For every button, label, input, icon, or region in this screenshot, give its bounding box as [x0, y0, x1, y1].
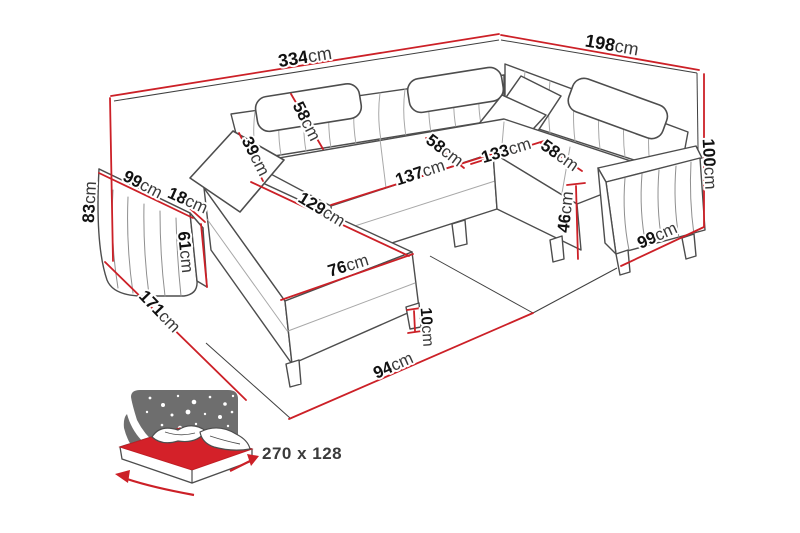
product-dimension-image: 334cm198cm83cm99cm18cm61cm171cm39cm58cm1…: [0, 0, 800, 533]
dimension-label-height-right: 100cm: [699, 138, 721, 190]
sofa-dimension-diagram: 334cm198cm83cm99cm18cm61cm171cm39cm58cm1…: [0, 0, 800, 533]
sofa-drawing: [98, 64, 705, 387]
dimension-label-leg-height: 10cm: [417, 307, 437, 347]
sofa-leg: [286, 360, 301, 387]
dimension-label-total-width: 334cm: [277, 43, 334, 71]
sofa-leg: [452, 220, 467, 247]
sofa-bed-icon: [115, 390, 259, 495]
dimension-label-floor-front: 94cm: [370, 348, 416, 382]
sofa-leg: [682, 234, 696, 259]
sofa-leg: [550, 236, 564, 262]
dimension-label-height-left: 83cm: [78, 181, 99, 224]
bed-size-label: 270 x 128: [262, 444, 372, 464]
